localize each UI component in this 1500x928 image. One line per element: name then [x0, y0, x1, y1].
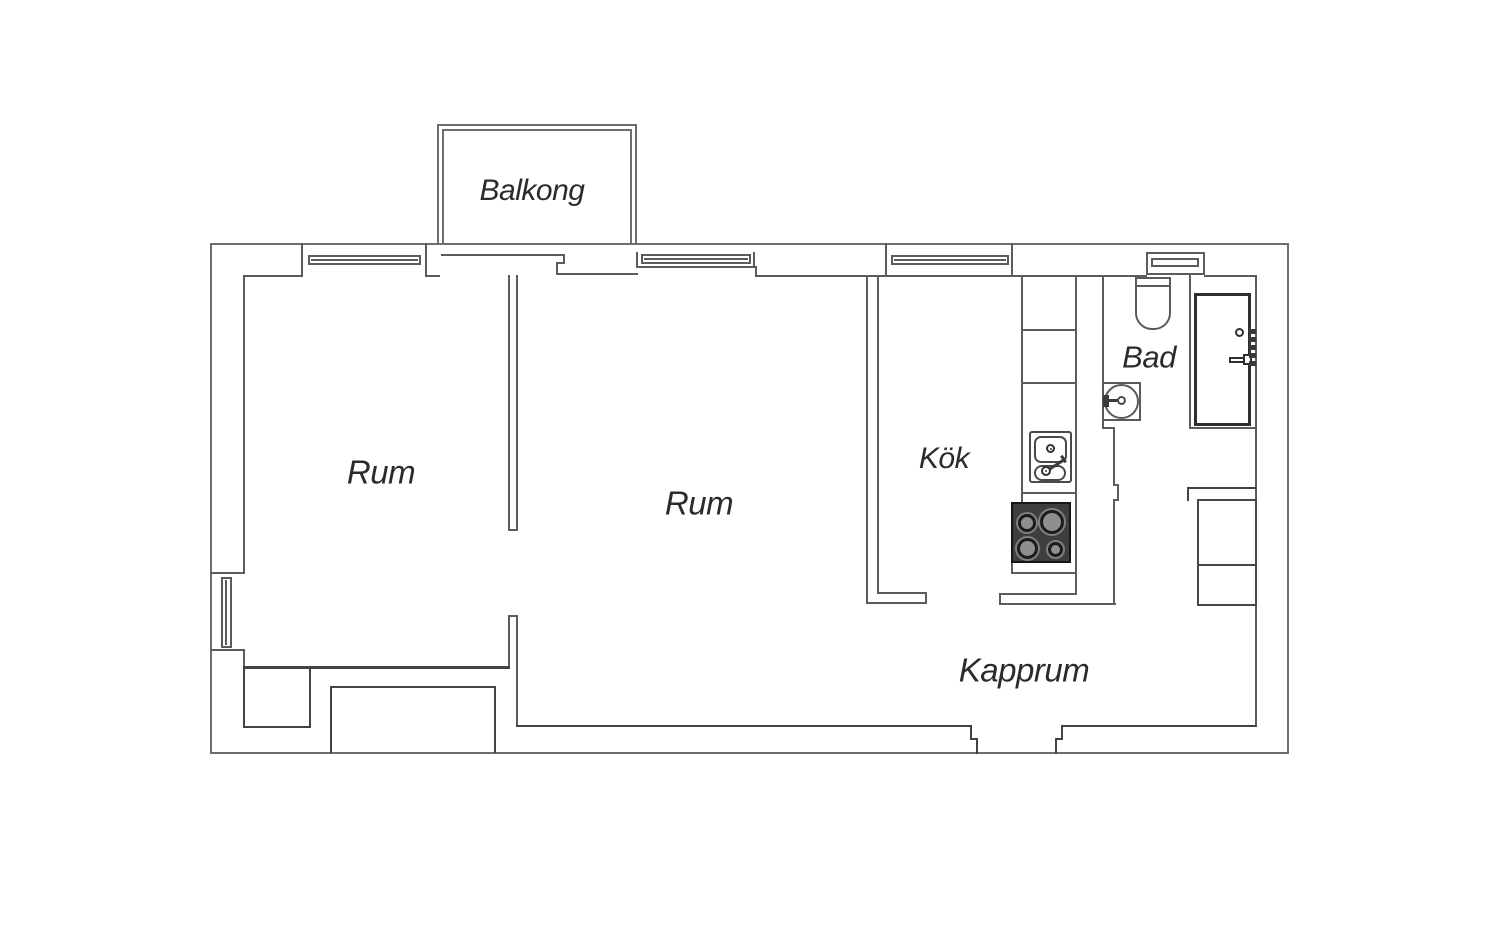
door-hinge	[1249, 337, 1256, 342]
counter-divider	[1021, 492, 1077, 494]
window-glazing-line	[311, 259, 418, 261]
counter-edge	[1011, 572, 1077, 574]
partition-wall	[516, 275, 518, 531]
wardrobe-shelf	[1187, 487, 1257, 489]
window-frame	[885, 243, 887, 277]
door-hinge	[1249, 361, 1256, 366]
window-frame	[1146, 273, 1205, 275]
counter-divider	[1021, 382, 1077, 384]
wall-top-outer	[210, 243, 1289, 245]
partition-wall-cap	[508, 529, 518, 531]
floor-plan: Balkong	[0, 0, 1500, 928]
door-peephole	[1235, 328, 1244, 337]
wall-left-outer	[210, 243, 212, 754]
bad-wall	[1113, 427, 1115, 486]
balcony-wall	[437, 124, 637, 126]
wall-niche	[243, 666, 245, 728]
entrance-jamb	[1055, 738, 1057, 754]
stove-burner	[1016, 512, 1038, 534]
kok-wall-stub	[877, 592, 927, 594]
room-label-kapprum: Kapprum	[959, 654, 1089, 687]
entry-nook-wall	[1189, 427, 1257, 429]
entrance-jamb	[1061, 725, 1063, 740]
room-label-rum-left: Rum	[347, 456, 415, 489]
kok-wall	[877, 275, 879, 594]
wall-niche	[309, 666, 311, 728]
room-label-balkong: Balkong	[480, 176, 585, 206]
wardrobe-icon	[1197, 564, 1257, 606]
wall-bottom-outer	[210, 752, 1289, 754]
window-glazing-line	[644, 258, 748, 260]
window-frame	[210, 649, 245, 651]
balcony-wall	[442, 129, 632, 131]
window-frame	[1146, 252, 1148, 275]
bad-wall	[1189, 275, 1191, 429]
kok-south-wall	[999, 593, 1077, 595]
wardrobe-icon	[1197, 499, 1257, 566]
wall-top-inner	[426, 275, 440, 277]
wall-bottom-inner	[516, 725, 972, 727]
room-label-bad: Bad	[1122, 342, 1176, 373]
toilet-tank-line	[1136, 285, 1170, 287]
wardrobe-shelf	[1187, 487, 1189, 501]
kok-wall-stub	[866, 602, 927, 604]
rum-left-south-wall	[243, 666, 510, 669]
window-glazing-line	[894, 259, 1006, 261]
entrance-jamb	[976, 738, 978, 754]
window-sill	[636, 266, 757, 268]
door-hinge	[1249, 345, 1256, 350]
wall-recess	[330, 686, 496, 688]
window-icon	[1151, 258, 1199, 267]
partition-wall-cap	[508, 615, 518, 617]
window-frame	[210, 572, 245, 574]
balcony-wall	[635, 124, 637, 245]
wall-top-inner	[1204, 275, 1257, 277]
stove-burner	[1038, 508, 1066, 536]
stove-burner	[1046, 540, 1065, 559]
door-hinge	[1249, 353, 1256, 358]
sink-faucet-dot	[1045, 470, 1047, 472]
wall-top-inner	[1013, 275, 1147, 277]
window-jamb	[755, 266, 757, 277]
counter-divider	[1021, 329, 1077, 331]
window-glazing-line	[225, 580, 227, 645]
partition-wall	[508, 615, 510, 668]
window-frame	[1146, 252, 1205, 254]
door-hinge	[1249, 329, 1256, 334]
window-frame	[1011, 243, 1013, 277]
room-label-kok: Kök	[919, 444, 969, 474]
wall-recess	[330, 686, 332, 753]
bad-wall	[1113, 500, 1115, 605]
balcony-sill-inner	[441, 254, 565, 256]
wall-bottom-inner	[1061, 725, 1257, 727]
wall-recess	[494, 686, 496, 753]
wall-right-outer	[1287, 243, 1289, 754]
sink-drain-dot	[1050, 448, 1052, 450]
counter-edge	[1021, 275, 1023, 503]
stove-burner	[1015, 536, 1040, 561]
balcony-door-threshold	[556, 273, 638, 275]
balcony-wall	[437, 124, 439, 245]
balcony-wall	[630, 129, 632, 245]
window-frame	[425, 243, 427, 277]
counter-edge	[1075, 275, 1077, 594]
wall-niche	[243, 726, 311, 728]
kok-wall	[866, 275, 868, 603]
balcony-wall	[442, 129, 444, 245]
wall-top-inner	[885, 275, 1013, 277]
window-frame	[301, 243, 303, 277]
room-label-rum-middle: Rum	[665, 487, 733, 520]
partition-wall	[508, 275, 510, 531]
wall-top-inner	[243, 275, 303, 277]
washbasin-faucet-knob	[1117, 396, 1126, 405]
wall-left-inner	[243, 275, 245, 573]
kok-south-wall	[999, 603, 1116, 605]
bad-wall	[1102, 275, 1104, 383]
partition-wall	[516, 615, 518, 727]
window-frame	[1203, 252, 1205, 275]
